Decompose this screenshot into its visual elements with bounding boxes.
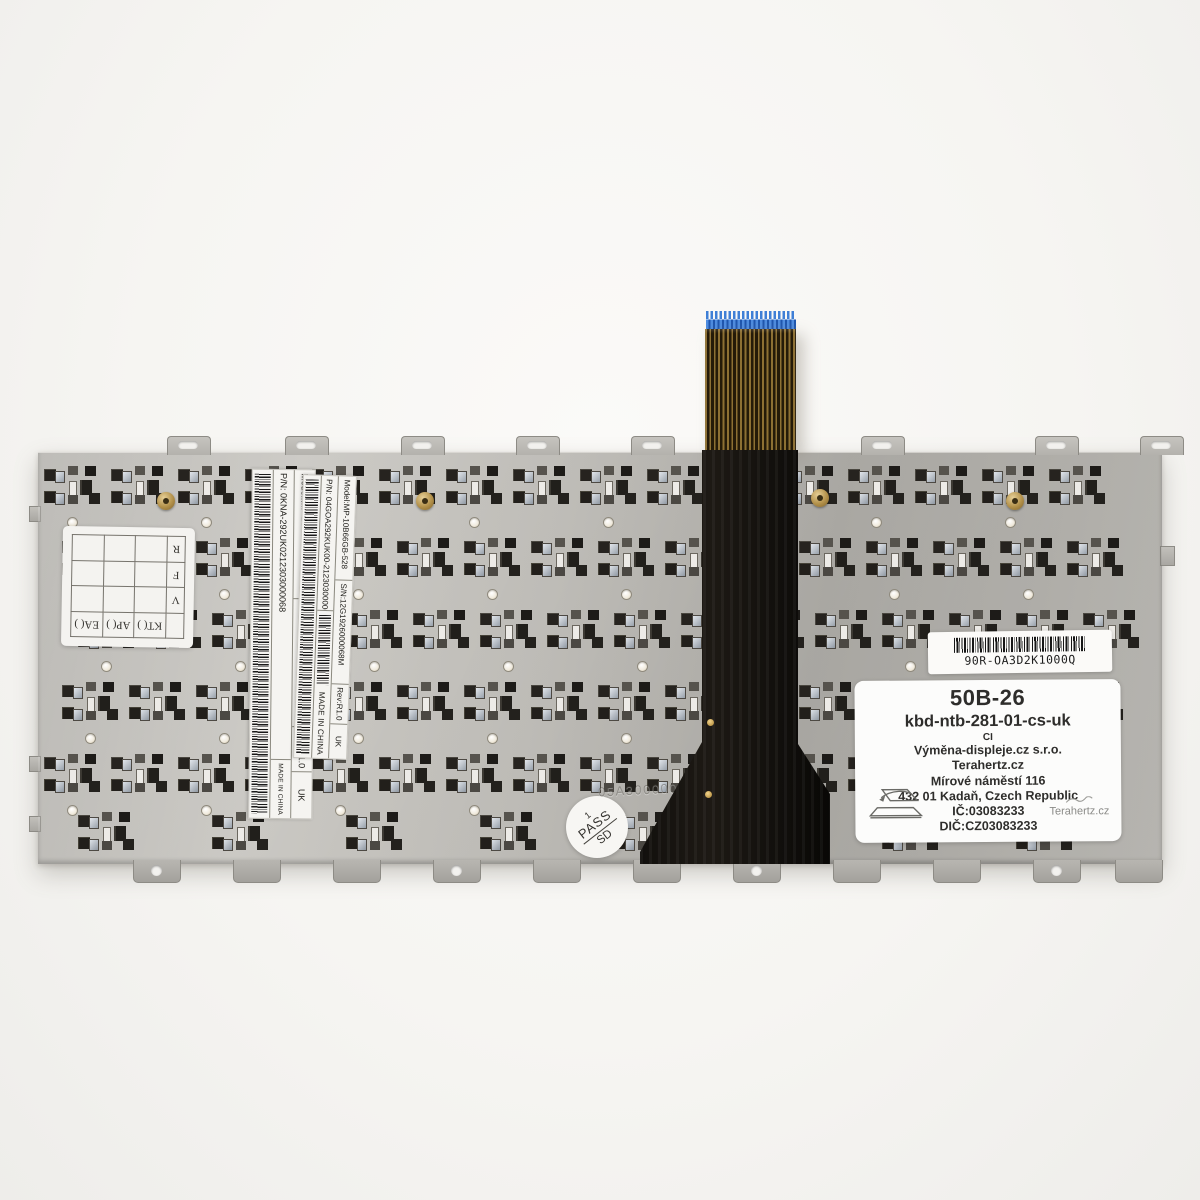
signature-text: Terahertz.cz xyxy=(1049,805,1109,817)
label-part-number: P/N: 0KNA-292UK0212303000068 xyxy=(271,470,294,760)
key-mount-cluster xyxy=(1067,538,1125,584)
rivet-hole xyxy=(86,734,95,743)
mounting-tab xyxy=(167,436,211,455)
key-mount-cluster xyxy=(379,754,437,800)
key-mount-cluster xyxy=(413,610,471,656)
rivet-hole xyxy=(638,662,647,671)
key-mount-cluster xyxy=(480,610,538,656)
signature: Terahertz.cz xyxy=(1049,796,1109,817)
shop-product-code: kbd-ntb-281-01-cs-uk xyxy=(855,711,1121,732)
rivet-hole xyxy=(336,806,345,815)
key-mount-cluster xyxy=(446,466,504,512)
label-region: UK xyxy=(291,772,311,818)
rivet-hole xyxy=(872,518,881,527)
rivet-hole xyxy=(102,662,111,671)
key-mount-cluster xyxy=(397,682,455,728)
part-label-inner: Model:MP-10B66GB-528 S/N:12G1926000068M … xyxy=(293,474,357,760)
rivet-hole xyxy=(1024,590,1033,599)
rivet-hole xyxy=(354,590,363,599)
rivet-hole xyxy=(604,518,613,527)
edge-tab xyxy=(1160,546,1175,566)
label-serial: S/N:12G1926000068M xyxy=(332,580,352,684)
key-mount-cluster xyxy=(78,812,136,858)
key-mount-cluster xyxy=(647,466,705,512)
key-mount-cluster xyxy=(513,754,571,800)
rivet-hole xyxy=(890,590,899,599)
mounting-tab xyxy=(285,436,329,455)
rivet-hole xyxy=(68,806,77,815)
barcode xyxy=(316,615,331,685)
solder-dot xyxy=(705,791,712,798)
key-mount-cluster xyxy=(480,812,538,858)
screw xyxy=(416,492,434,510)
rivet-hole xyxy=(202,806,211,815)
key-mount-cluster xyxy=(580,466,638,512)
mounting-tab xyxy=(233,860,281,883)
key-mount-cluster xyxy=(397,538,455,584)
rivet-hole xyxy=(488,734,497,743)
mounting-tab xyxy=(1140,436,1184,455)
mounting-tab xyxy=(861,436,905,455)
key-mount-cluster xyxy=(915,466,973,512)
qc-grid-label: EA( ) xyxy=(74,618,99,630)
laptop-icon xyxy=(867,787,925,826)
shop-code: 50B-26 xyxy=(854,684,1120,712)
mounting-tab xyxy=(516,436,560,455)
key-mount-cluster xyxy=(815,610,873,656)
rivet-hole xyxy=(504,662,513,671)
mounting-tab xyxy=(1115,860,1163,883)
mounting-tab xyxy=(333,860,381,883)
rivet-hole xyxy=(354,734,363,743)
mounting-tab xyxy=(133,860,181,883)
qc-grid-table: R F V EA( ) AP( ) KT( ) xyxy=(70,534,186,639)
key-mount-cluster xyxy=(346,610,404,656)
key-mount-cluster xyxy=(598,538,656,584)
qc-grid-label: V xyxy=(171,594,179,606)
key-mount-cluster xyxy=(866,538,924,584)
label-region: UK xyxy=(329,724,347,759)
qc-grid-label: F xyxy=(173,569,179,581)
rivet-hole xyxy=(622,734,631,743)
mounting-tab xyxy=(533,860,581,883)
key-mount-cluster xyxy=(531,682,589,728)
rivet-hole xyxy=(236,662,245,671)
rivet-hole xyxy=(622,590,631,599)
key-mount-cluster xyxy=(129,682,187,728)
ribbon-cable-connector xyxy=(706,311,796,331)
key-mount-cluster xyxy=(196,682,254,728)
mounting-tab xyxy=(933,860,981,883)
solder-dot xyxy=(707,719,714,726)
qc-grid-label: KT( ) xyxy=(138,619,163,631)
key-mount-cluster xyxy=(531,538,589,584)
rivet-hole xyxy=(906,662,915,671)
qc-grid-label: R xyxy=(172,543,180,555)
pass-sticker: 1 PASS SD xyxy=(566,796,628,858)
key-mount-cluster xyxy=(178,466,236,512)
key-mount-cluster xyxy=(212,812,270,858)
label-rev: Rev:R1.0 xyxy=(331,684,349,725)
key-mount-cluster xyxy=(1049,466,1107,512)
screw xyxy=(811,489,829,507)
key-mount-cluster xyxy=(346,812,404,858)
shop-sticker: 50B-26 kbd-ntb-281-01-cs-uk CI Výměna-di… xyxy=(854,679,1121,843)
key-mount-cluster xyxy=(464,682,522,728)
label-origin: MADE IN CHINA xyxy=(270,760,291,818)
key-mount-cluster xyxy=(1000,538,1058,584)
mounting-tab xyxy=(401,436,445,455)
mounting-tab xyxy=(433,860,481,883)
key-mount-cluster xyxy=(44,466,102,512)
qc-grid-sticker: R F V EA( ) AP( ) KT( ) xyxy=(61,526,195,648)
key-mount-cluster xyxy=(614,610,672,656)
label-origin: MADE IN CHINA xyxy=(312,689,331,759)
label-model: Model:MP-10B66GB-528 xyxy=(336,476,356,580)
screw xyxy=(157,492,175,510)
rivet-hole xyxy=(202,518,211,527)
pass-text: 1 PASS SD xyxy=(569,799,625,855)
key-mount-cluster xyxy=(446,754,504,800)
rivet-hole xyxy=(220,590,229,599)
mounting-tab xyxy=(1035,436,1079,455)
barcode xyxy=(954,636,1086,653)
sku-code: 90R-OA3D2K1000Q xyxy=(964,652,1076,668)
label-row xyxy=(249,470,273,818)
key-mount-cluster xyxy=(464,538,522,584)
ribbon-cable-flex xyxy=(705,329,796,453)
screw xyxy=(1006,492,1024,510)
mounting-tab xyxy=(1033,860,1081,883)
signature-swoosh xyxy=(1064,796,1094,804)
key-mount-cluster xyxy=(848,466,906,512)
rivet-hole xyxy=(470,806,479,815)
key-mount-cluster xyxy=(62,682,120,728)
product-photo: 05A300000U0 1 01 R F V EA( ) AP( ) KT( )… xyxy=(0,0,1200,1200)
key-mount-cluster xyxy=(111,754,169,800)
rivet-hole xyxy=(1006,518,1015,527)
barcode xyxy=(251,474,271,814)
key-mount-cluster xyxy=(196,538,254,584)
key-mount-cluster xyxy=(44,754,102,800)
key-mount-cluster xyxy=(933,538,991,584)
key-mount-cluster xyxy=(312,754,370,800)
rivet-hole xyxy=(470,518,479,527)
key-mount-cluster xyxy=(799,682,857,728)
rivet-hole xyxy=(488,590,497,599)
key-mount-cluster xyxy=(513,466,571,512)
mounting-tab xyxy=(631,436,675,455)
rivet-hole xyxy=(220,734,229,743)
sku-barcode-sticker: 90R-OA3D2K1000Q xyxy=(928,630,1113,675)
key-mount-cluster xyxy=(547,610,605,656)
key-mount-cluster xyxy=(799,538,857,584)
qc-grid-label: AP( ) xyxy=(106,618,130,630)
key-mount-cluster xyxy=(598,682,656,728)
rivet-hole xyxy=(370,662,379,671)
label-row: P/N: 0KNA-292UK0212303000068 MADE IN CHI… xyxy=(269,470,294,818)
mounting-tab xyxy=(833,860,881,883)
key-mount-cluster xyxy=(178,754,236,800)
